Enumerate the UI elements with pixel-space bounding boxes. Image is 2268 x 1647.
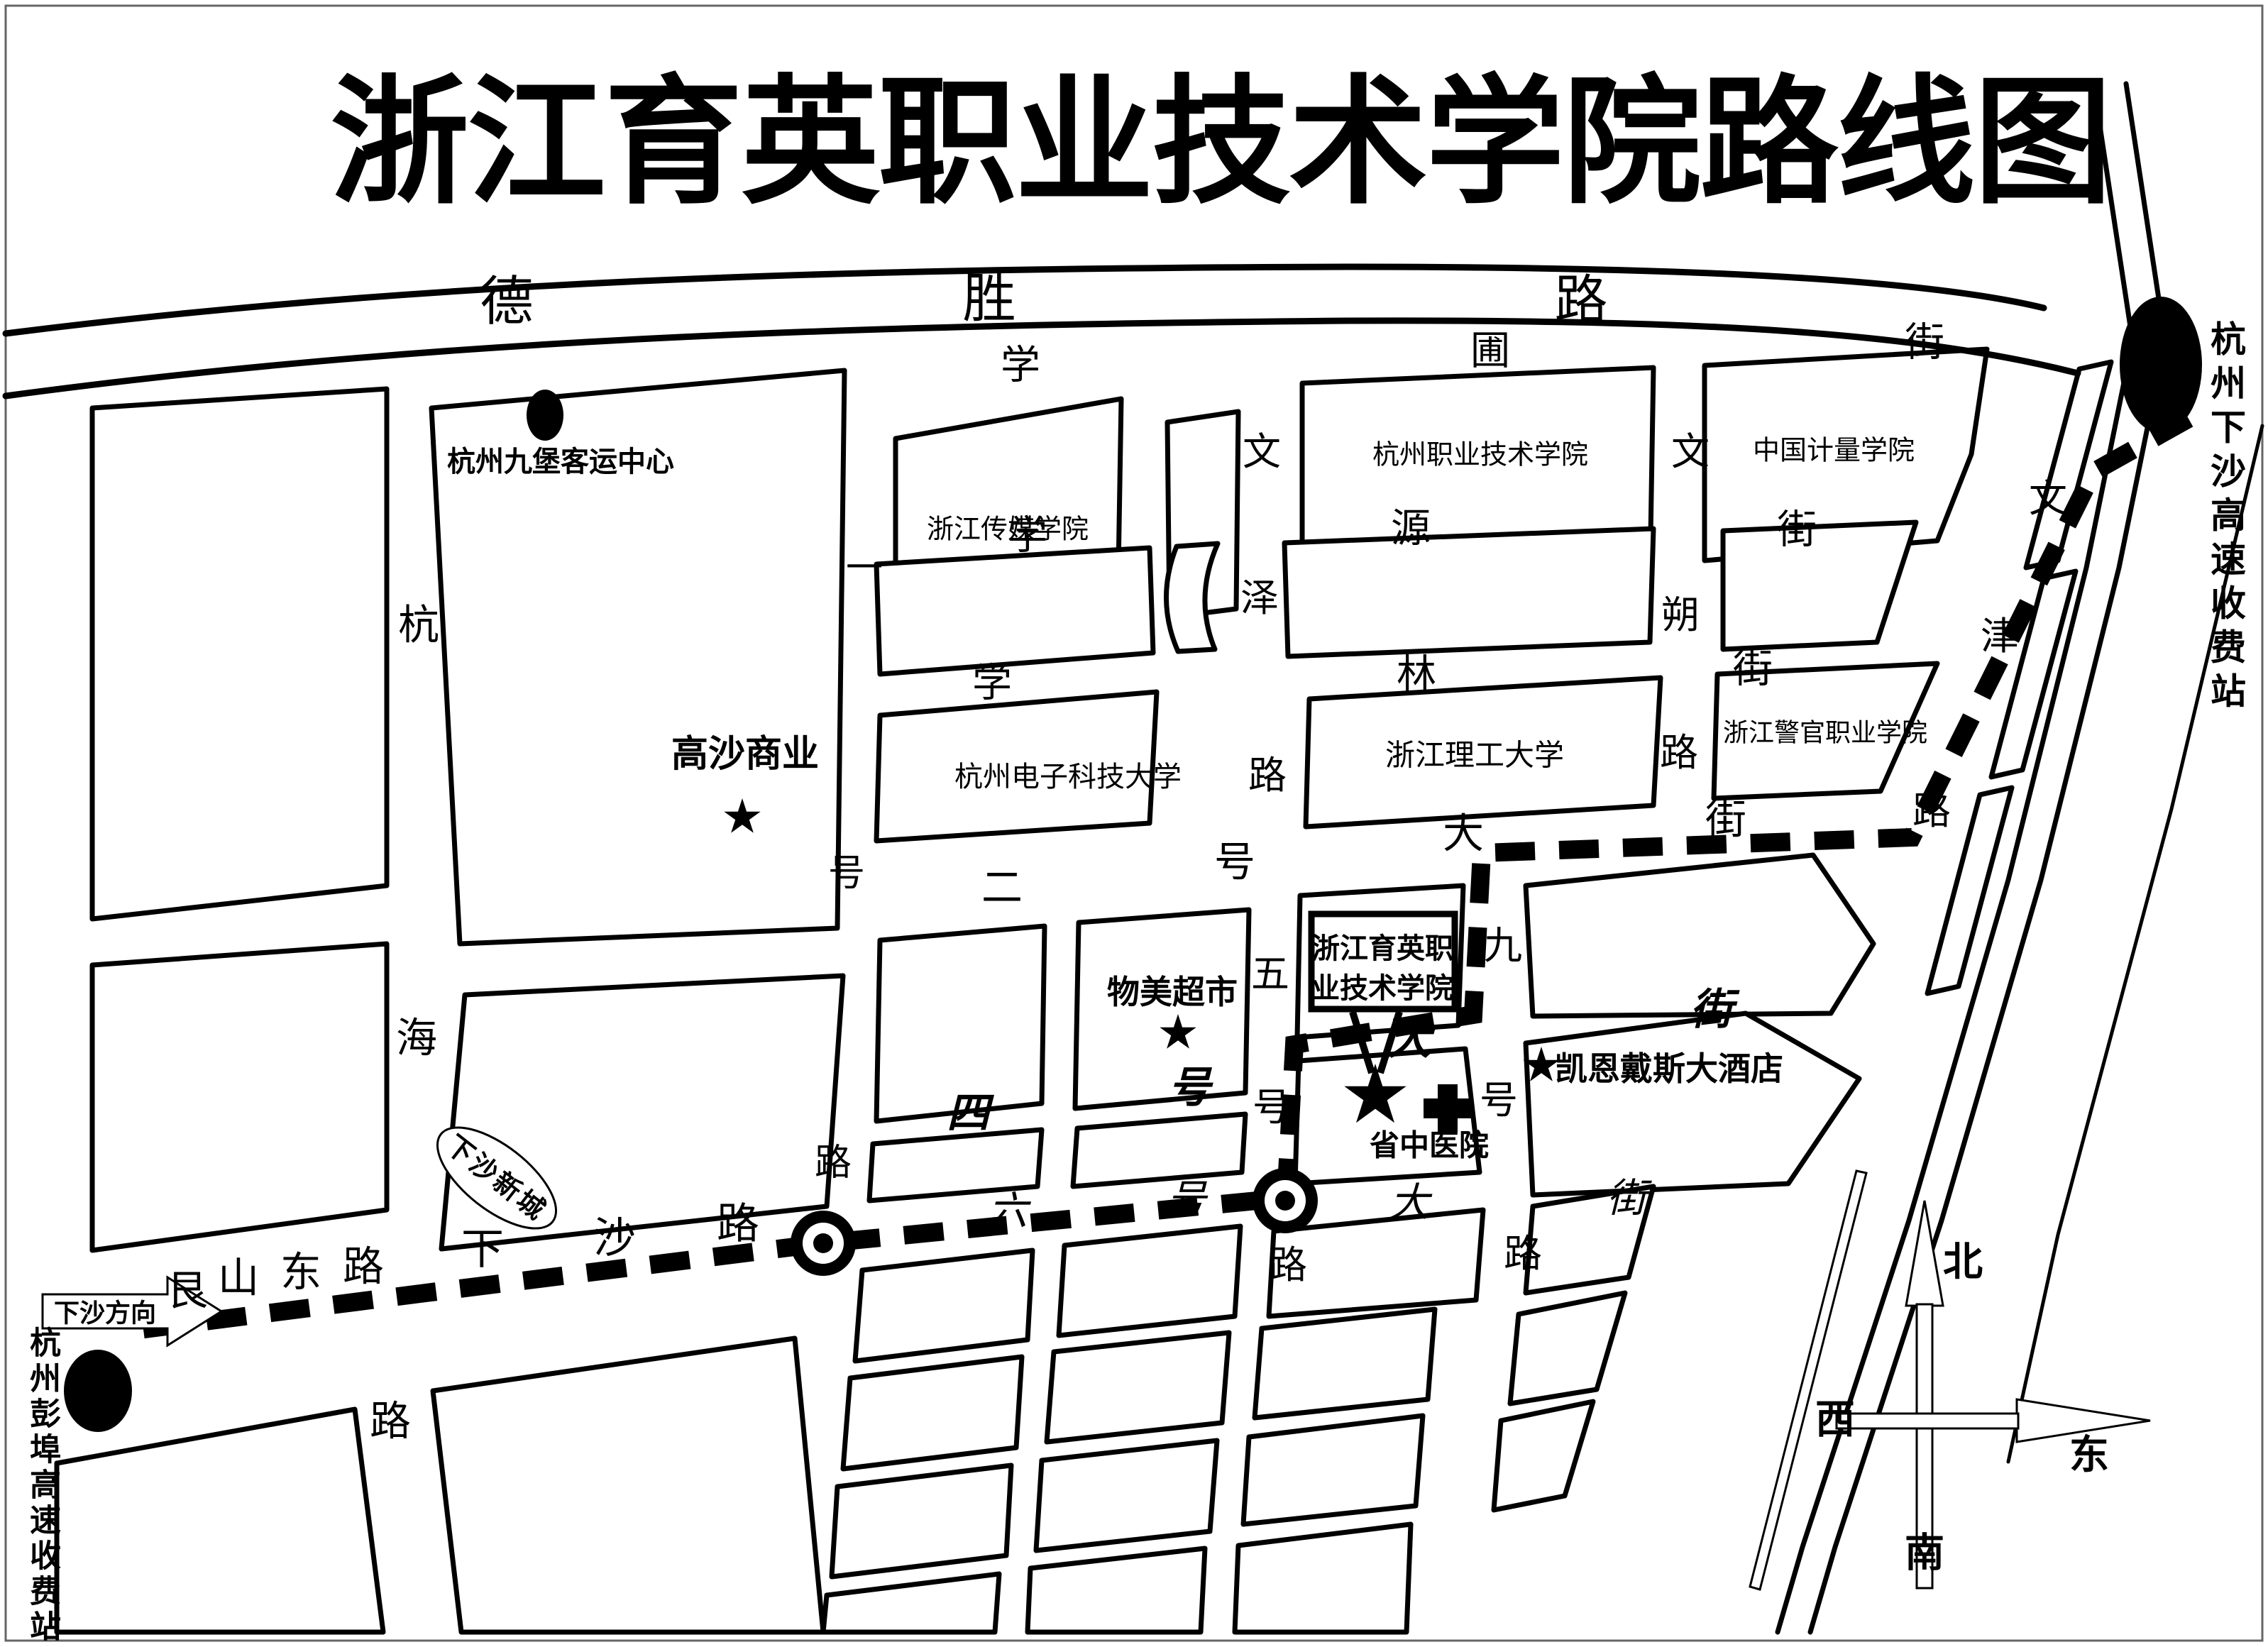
street-yihaolu-char-2: 路 [815, 1142, 852, 1184]
block-grid [855, 1250, 1033, 1361]
toll-label-pengbu-char-2: 彭 [30, 1397, 61, 1431]
toll-label-pengbu-char-8: 站 [30, 1609, 61, 1644]
block-grid [1047, 1333, 1229, 1442]
poi-label-jiubao-bus-center: 杭州九堡客运中心 [447, 446, 674, 478]
toll-label-pengbu-char-6: 收 [30, 1538, 61, 1573]
block-m2 [1284, 529, 1653, 656]
campus-label-hangzhou-dianzi: 杭州电子科技大学 [954, 761, 1182, 793]
poi-label-kaiendaisi-hotel: 凯恩戴斯大酒店 [1555, 1050, 1783, 1087]
toll-label-pengbu-char-4: 高 [30, 1467, 61, 1502]
block-s2b [1073, 1114, 1245, 1186]
block-grid [832, 1465, 1011, 1577]
campus-label-zhongguo-jiliang: 中国计量学院 [1753, 436, 1915, 466]
compass-label-east: 东 [2069, 1433, 2109, 1477]
block-west-1 [92, 389, 387, 919]
compass-label-west: 西 [1815, 1397, 1855, 1442]
compass-label-south: 南 [1905, 1531, 1944, 1575]
street-xuepujie-char-0: 学 [1001, 343, 1040, 387]
street-liuhaodajie-char-2: 大 [1389, 1180, 1433, 1225]
toll-label-pengbu-char-7: 费 [30, 1574, 61, 1609]
street-liuhaodajie-char-3: 街 [1607, 1176, 1652, 1221]
street-wenshuolu-char-1: 朔 [1661, 594, 1700, 637]
toll-label-xiasha-char-2: 下 [2211, 408, 2246, 448]
poi-label-wumei-supermarket: 物美超市 [1107, 974, 1238, 1010]
jiubao-station-dot [527, 390, 563, 441]
street-wuhaolu-char-0: 五 [1251, 953, 1289, 996]
route-node-xiashalu [791, 1211, 856, 1276]
toll-label-pengbu-char-1: 州 [30, 1361, 61, 1396]
toll-label-xiasha-char-4: 高 [2211, 496, 2246, 536]
toll-label-xiasha-char-8: 站 [2211, 672, 2246, 712]
street-wuhaolu-char-1: 号 [1253, 1086, 1291, 1129]
street-sihaodajie-char-2: 大 [1388, 1015, 1436, 1063]
poi-label-province-tcm-hospital: 省中医院 [1370, 1129, 1489, 1162]
toll-label-xiasha-char-7: 费 [2211, 628, 2246, 668]
xiasha-toll-dot [2120, 297, 2202, 433]
street-sihaodajie-char-1: 号 [1168, 1064, 1213, 1111]
street-xuelinjie-char-2: 街 [1733, 646, 1773, 691]
street-deshenglu-char-1: 胜 [962, 268, 1015, 328]
street-sihaodajie-char-0: 四 [947, 1089, 995, 1137]
street-jiuhaolu-char-2: 路 [1504, 1233, 1542, 1275]
direction-arrow-label: 下沙方向 [54, 1299, 156, 1328]
campus-label-zhejiang-ligong: 浙江理工大学 [1385, 739, 1564, 772]
street-wenjinlu-char-2: 路 [1912, 790, 1951, 832]
block-grid [1235, 1524, 1411, 1632]
street-erhaodajie-char-3: 街 [1705, 796, 1746, 842]
street-yihaolu-char-0: 一 [846, 548, 883, 589]
poi-label-gaosha-business: 高沙商业 [671, 734, 819, 775]
block-grid [1243, 1416, 1423, 1524]
street-xuepujie-char-2: 街 [1905, 320, 1944, 365]
college-callout-line1: 浙江育英职 [1311, 933, 1453, 964]
street-wenshuolu-char-0: 文 [1671, 431, 1710, 473]
toll-label-xiasha-char-5: 速 [2211, 540, 2246, 580]
street-yihaolu-char-1: 号 [828, 853, 865, 894]
street-hanghailu-char-0: 杭 [398, 602, 439, 648]
toll-label-pengbu-char-3: 埠 [30, 1432, 61, 1467]
street-hanghailu-char-1: 海 [396, 1015, 437, 1061]
street-erhaodajie-char-2: 大 [1443, 810, 1484, 856]
block-grid [1059, 1226, 1240, 1335]
street-xiashalu-char-1: 沙 [593, 1214, 636, 1262]
street-erhaodajie-char-0: 二 [981, 864, 1023, 910]
block-grid [1255, 1309, 1435, 1418]
block-grid [1036, 1441, 1217, 1550]
street-genshandonglu-char-1: 山 [218, 1255, 259, 1301]
block-grid [843, 1357, 1022, 1469]
street-liuhaodajie-char-0: 六 [988, 1189, 1032, 1233]
street-wenjinlu-char-0: 文 [2029, 478, 2067, 520]
street-genshandonglu-char-2: 东 [280, 1249, 321, 1295]
toll-label-xiasha-char-1: 州 [2211, 364, 2246, 404]
campus-label-zhejiang-jingguan: 浙江警官职业学院 [1723, 718, 1927, 747]
street-genshandonglu-char-0: 艮 [167, 1267, 208, 1313]
campus-label-zhejiang-chuanmei: 浙江传媒学院 [927, 514, 1089, 544]
street-hanghailu-char-2: 路 [370, 1398, 411, 1444]
street-xiashalu-char-2: 路 [717, 1200, 759, 1247]
map-title: 浙江育英职业技术学院路线图 [331, 65, 2111, 220]
street-wenshuolu-char-2: 路 [1660, 732, 1698, 774]
street-wuhaolu-char-2: 路 [1269, 1244, 1307, 1287]
street-liuhaodajie-char-1: 号 [1167, 1177, 1209, 1222]
street-xueyuanjie-char-1: 源 [1391, 506, 1431, 551]
street-xuelinjie-char-0: 学 [972, 661, 1012, 705]
street-genshandonglu-char-3: 路 [343, 1243, 384, 1289]
toll-label-xiasha-char-6: 收 [2211, 584, 2246, 624]
street-xuepujie-char-1: 圃 [1470, 329, 1510, 373]
toll-label-xiasha-char-3: 沙 [2211, 452, 2246, 492]
college-callout-line2: 业技术学院 [1311, 973, 1453, 1004]
campus-label-hangzhou-zhiye: 杭州职业技术学院 [1372, 440, 1588, 470]
street-erhaodajie-char-1: 号 [1214, 839, 1255, 885]
toll-label-xiasha-char-0: 杭 [2211, 320, 2246, 360]
toll-label-pengbu-char-5: 速 [30, 1503, 61, 1538]
street-jiuhaolu-char-0: 九 [1484, 925, 1522, 967]
street-wenjinlu-char-1: 津 [1981, 615, 2019, 658]
toll-label-pengbu-char-0: 杭 [30, 1326, 61, 1360]
block-southwest [433, 1338, 823, 1632]
street-xiashalu-char-0: 下 [461, 1225, 504, 1273]
street-deshenglu-char-2: 路 [1554, 270, 1607, 329]
street-deshenglu-char-0: 德 [480, 271, 533, 331]
compass-label-north: 北 [1943, 1240, 1983, 1284]
block-west-2 [92, 944, 387, 1250]
street-sihaodajie-char-3: 街 [1690, 986, 1740, 1033]
street-xuelinjie-char-1: 林 [1397, 652, 1436, 697]
street-jiuhaolu-char-1: 号 [1480, 1079, 1518, 1122]
pengbu-toll-dot [64, 1350, 132, 1432]
street-wenzelu-char-0: 文 [1243, 431, 1281, 473]
block-m1 [876, 548, 1153, 674]
route-map: 浙江育英职业技术学院路线图 德胜路学圃街学源街学林街二号大街四号大街六号大街下沙… [0, 0, 2268, 1647]
route-node-wuhaolu [1253, 1168, 1318, 1233]
street-wenzelu-char-2: 路 [1248, 754, 1287, 797]
street-xueyuanjie-char-2: 街 [1777, 507, 1817, 552]
street-wenzelu-char-1: 泽 [1240, 577, 1279, 619]
